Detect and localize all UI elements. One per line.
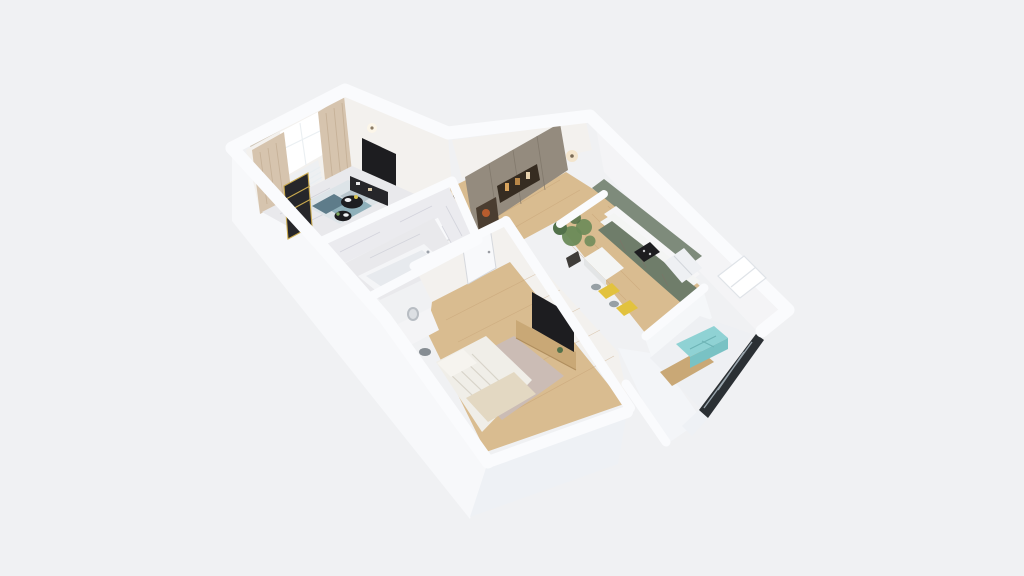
table-plate-1 [345,198,352,202]
coffee-table-large [341,196,363,209]
floorplan-stage [0,0,1024,576]
table-plant-sprig [336,212,339,215]
floorplan-render [0,0,1024,576]
table-flowers [354,195,358,199]
cooktop-burner-2 [649,253,651,255]
niche-item-1 [505,183,509,191]
table-plate-2 [343,213,349,216]
console-plant [557,347,563,353]
console-deco-2 [368,188,372,191]
hanging-coat [482,209,490,217]
vanity-stool [419,348,431,356]
door-handle [488,251,491,254]
chair-back-1 [591,284,601,290]
spotlight-icon [370,126,373,129]
console-deco-1 [356,182,360,185]
niche-item-3 [526,172,530,179]
niche-item-2 [515,178,520,185]
bath-faucet [427,251,430,254]
plant-foliage-5 [585,236,596,247]
chair-back-2 [609,301,619,307]
vanity-mirror-glass [409,309,417,319]
coffee-table-small [335,211,352,221]
cooktop-burner-1 [643,250,645,252]
sconce-1 [570,154,574,158]
